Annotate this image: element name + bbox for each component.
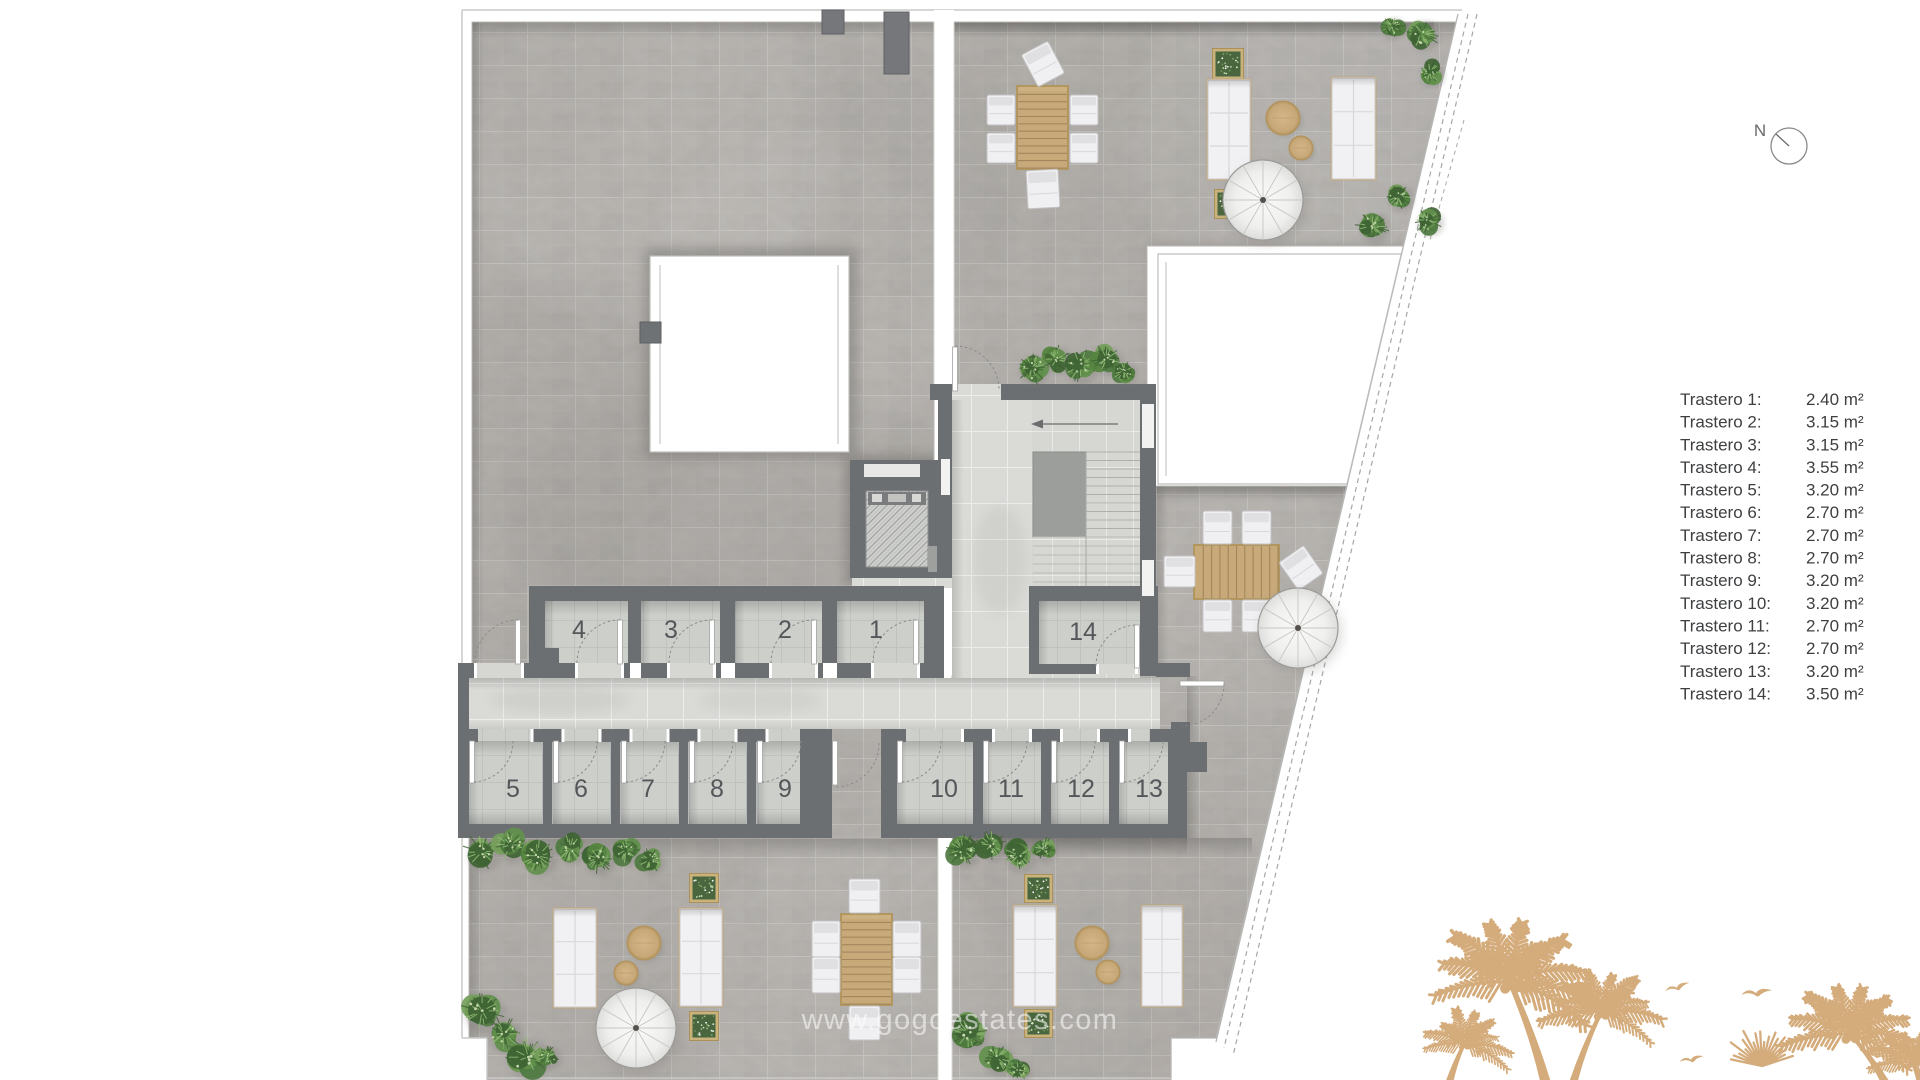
svg-text:5: 5 [506,775,520,803]
svg-text:14: 14 [1069,618,1097,646]
svg-text:8: 8 [710,775,724,803]
svg-text:2.70 m²: 2.70 m² [1806,617,1864,636]
svg-text:Trastero 8:: Trastero 8: [1680,549,1762,568]
svg-text:Trastero 9:: Trastero 9: [1680,571,1762,590]
svg-text:3.15 m²: 3.15 m² [1806,435,1864,454]
svg-text:Trastero 4:: Trastero 4: [1680,458,1762,477]
svg-text:Trastero 1:: Trastero 1: [1680,390,1762,409]
svg-text:13: 13 [1135,775,1163,803]
svg-text:3.20 m²: 3.20 m² [1806,662,1864,681]
svg-text:2: 2 [778,616,792,644]
svg-text:Trastero 13:: Trastero 13: [1680,662,1771,681]
svg-text:4: 4 [572,616,586,644]
svg-text:2.70 m²: 2.70 m² [1806,639,1864,658]
svg-text:6: 6 [574,775,588,803]
svg-text:Trastero 7:: Trastero 7: [1680,526,1762,545]
svg-text:3.55 m²: 3.55 m² [1806,458,1864,477]
svg-text:3.20 m²: 3.20 m² [1806,481,1864,500]
svg-text:7: 7 [641,775,655,803]
svg-text:N: N [1754,121,1766,140]
svg-text:2.70 m²: 2.70 m² [1806,503,1864,522]
svg-text:Trastero 5:: Trastero 5: [1680,481,1762,500]
svg-text:Trastero 12:: Trastero 12: [1680,639,1771,658]
svg-text:Trastero 6:: Trastero 6: [1680,503,1762,522]
svg-text:3: 3 [664,616,678,644]
svg-text:2.70 m²: 2.70 m² [1806,549,1864,568]
svg-text:Trastero 14:: Trastero 14: [1680,685,1771,704]
svg-text:Trastero 3:: Trastero 3: [1680,435,1762,454]
svg-text:2.40 m²: 2.40 m² [1806,390,1864,409]
svg-text:12: 12 [1067,775,1095,803]
svg-text:3.20 m²: 3.20 m² [1806,594,1864,613]
svg-text:3.20 m²: 3.20 m² [1806,571,1864,590]
svg-text:www.gogoestates.com: www.gogoestates.com [801,1004,1119,1036]
svg-text:9: 9 [778,775,792,803]
svg-text:Trastero 10:: Trastero 10: [1680,594,1771,613]
svg-text:11: 11 [998,775,1024,803]
svg-text:Trastero 11:: Trastero 11: [1680,617,1770,636]
svg-text:10: 10 [930,775,958,803]
svg-text:1: 1 [869,616,883,644]
svg-text:Trastero 2:: Trastero 2: [1680,413,1762,432]
svg-text:2.70 m²: 2.70 m² [1806,526,1864,545]
svg-text:3.15 m²: 3.15 m² [1806,413,1864,432]
svg-text:3.50 m²: 3.50 m² [1806,685,1864,704]
